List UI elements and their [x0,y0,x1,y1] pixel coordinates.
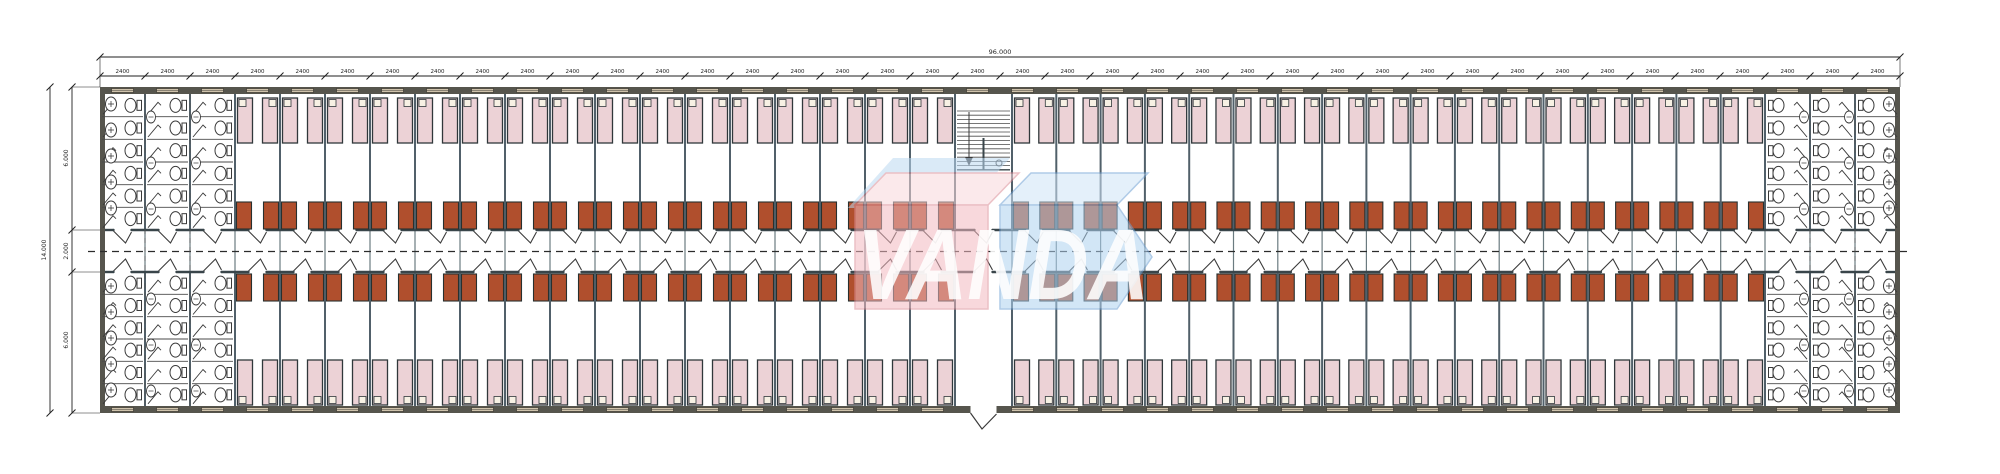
bed-pillow [1400,100,1407,107]
stall-door-leaf [148,370,161,382]
bed-pillow [1665,397,1672,404]
cabinet [1261,202,1276,229]
toilet-tank [137,278,142,288]
bed-pillow [284,397,291,404]
toilet-bowl [170,121,181,135]
bathroom-block [1767,94,1898,406]
stall-door-leaf [193,325,206,337]
toilet-bowl [1773,98,1784,112]
door-leaf [564,259,582,271]
bed-pillow [674,397,681,404]
stall-door-leaf [1839,325,1852,337]
door-leaf [204,259,222,271]
stall-door-leaf [1794,325,1807,337]
door-leaf [1557,259,1575,271]
toilet-tank [1859,323,1864,333]
bed-pillow [449,397,456,404]
bed-pillow [1193,397,1200,404]
toilet-bowl [1863,388,1874,402]
cabinet [372,202,387,229]
door-leaf [1869,231,1887,243]
toilet-bowl [170,212,181,226]
bed-pillow [899,100,906,107]
bed-pillow [944,397,951,404]
cabinet [1235,202,1250,229]
toilet-tank [1769,390,1774,400]
bed-pillow [1355,100,1362,107]
toilet-tank [182,301,187,311]
stall-door-leaf [148,216,161,228]
cabinet [489,274,504,301]
bed-pillow [719,397,726,404]
bed-pillow [314,397,321,404]
door-leaf [1824,231,1842,243]
module-dimension-label: 2400 [791,69,805,75]
bed-pillow [1533,397,1540,404]
bed-pillow [1577,397,1584,404]
door-jamb [157,271,159,273]
bed-pillow [1488,397,1495,404]
bed-pillow [554,397,561,404]
cabinet [822,202,837,229]
cabinet [1324,202,1339,229]
door-jamb [1511,271,1513,273]
toilet-bowl [1863,144,1874,158]
toilet-bowl [1773,388,1784,402]
cabinet [327,202,342,229]
toilet-bowl [215,144,226,158]
module-dimension-label: 2400 [1331,69,1345,75]
bed-pillow [779,100,786,107]
toilet-tank [1859,214,1864,224]
entrance-door-leaf [971,413,997,429]
cabinet [399,274,414,301]
bed-pillow [1134,100,1141,107]
module-dimension-label: 2400 [1691,69,1705,75]
door-jamb [1201,271,1203,273]
bed-pillow [1222,397,1229,404]
door-leaf [294,231,312,243]
toilet-tank [1814,390,1819,400]
stall-door-leaf [1839,280,1852,292]
cabinet [417,202,432,229]
cabinet [1527,274,1542,301]
cabinet [282,274,297,301]
cabinet [1722,202,1737,229]
module-dimension-label: 2400 [161,69,175,75]
stall-door-leaf [193,216,206,228]
toilet-tank [1769,123,1774,133]
bed-pillow [854,397,861,404]
bed-pillow [329,397,336,404]
bed-pillow [764,397,771,404]
bed-pillow [1621,100,1628,107]
cabinet [552,274,567,301]
toilet-tank [182,278,187,288]
door-leaf [519,231,537,243]
cabinet [534,202,549,229]
cabinet [1634,274,1649,301]
cabinet [417,274,432,301]
bed-pillow [1222,100,1229,107]
toilet-bowl [125,189,136,203]
cabinet [1412,202,1427,229]
toilet-tank [137,214,142,224]
height-segment-label: 6.000 [63,331,70,348]
bed-pillow [1592,100,1599,107]
toilet-tank [1814,301,1819,311]
cabinet [1483,202,1498,229]
toilet-tank [182,368,187,378]
toilet-bowl [215,212,226,226]
bed-pillow [464,397,471,404]
toilet-bowl [215,388,226,402]
toilet-bowl [1773,276,1784,290]
toilet-bowl [1818,366,1829,380]
cabinet [1173,274,1188,301]
door-jamb [382,271,384,273]
bed-pillow [1105,100,1112,107]
door-jamb [1467,271,1469,273]
bed-pillow [1621,397,1628,404]
cabinet [1438,202,1453,229]
toilet-bowl [215,189,226,203]
module-dimension-label: 2400 [1376,69,1390,75]
toilet-bowl [1773,299,1784,313]
module-dimension-label: 2400 [476,69,490,75]
bed-pillow [584,397,591,404]
door-leaf [1380,231,1398,243]
bed-pillow [284,100,291,107]
bed-pillow [914,397,921,404]
cabinet [804,202,819,229]
bed-pillow [869,100,876,107]
toilet-bowl [1773,366,1784,380]
bed-pillow [1459,100,1466,107]
module-dimension-label: 2400 [1781,69,1795,75]
module-dimension-label: 2400 [1826,69,1840,75]
door-leaf [1645,259,1663,271]
door-leaf [1247,259,1265,271]
toilet-bowl [215,299,226,313]
toilet-tank [1814,100,1819,110]
door-jamb [472,271,474,273]
bed-pillow [1680,100,1687,107]
toilet-tank [137,100,142,110]
cabinet [237,202,252,229]
height-segment-label: 6.000 [63,149,70,166]
door-jamb [202,229,204,231]
cabinet [687,274,702,301]
bed-pillow [269,100,276,107]
module-dimension-label: 2400 [206,69,220,75]
door-leaf [429,231,447,243]
module-dimension-label: 2400 [431,69,445,75]
toilet-tank [1769,191,1774,201]
door-jamb [697,271,699,273]
toilet-tank [227,301,232,311]
toilet-bowl [170,299,181,313]
toilet-bowl [125,366,136,380]
toilet-tank [1769,168,1774,178]
cabinet [1634,202,1649,229]
bed-pillow [1444,100,1451,107]
toilet-tank [1859,191,1864,201]
toilet-bowl [1818,166,1829,180]
door-leaf [1690,231,1708,243]
bed-pillow [1548,100,1555,107]
bed-pillow [1459,397,1466,404]
toilet-bowl [1863,98,1874,112]
toilet-bowl [1818,299,1829,313]
bed-pillow [1636,397,1643,404]
toilet-bowl [215,366,226,380]
cabinet [1527,202,1542,229]
cabinet [1571,274,1586,301]
bed-pillow [644,397,651,404]
cabinet [237,274,252,301]
stall-door-leaf [148,325,161,337]
toilet-bowl [1863,189,1874,203]
toilet-tank [1859,100,1864,110]
module-dimension-label: 2400 [1511,69,1525,75]
bed-pillow [1592,397,1599,404]
module-dimension-label: 2400 [296,69,310,75]
door-jamb [1423,271,1425,273]
toilet-bowl [1773,166,1784,180]
bed-pillow [329,100,336,107]
bed-pillow [404,100,411,107]
bed-pillow [1680,397,1687,404]
toilet-tank [182,123,187,133]
bed-pillow [1237,397,1244,404]
toilet-tank [1769,146,1774,156]
toilet-tank [1859,390,1864,400]
module-dimension-label: 2400 [386,69,400,75]
door-jamb [1822,271,1824,273]
toilet-bowl [215,166,226,180]
bed-pillow [809,100,816,107]
toilet-tank [182,323,187,333]
toilet-tank [137,301,142,311]
stall-door-leaf [1839,170,1852,182]
cabinet [579,202,594,229]
stall-door-leaf [1839,370,1852,382]
toilet-bowl [125,388,136,402]
cabinet [1722,274,1737,301]
module-dimension-label: 2400 [1061,69,1075,75]
toilet-bowl [170,189,181,203]
cabinet [444,202,459,229]
cabinet [1589,202,1604,229]
cabinet [354,202,369,229]
toilet-tank [1859,345,1864,355]
entrance-opening [971,406,997,413]
toilet-bowl [1818,144,1829,158]
bed-pillow [1134,397,1141,404]
bed-pillow [419,397,426,404]
door-jamb [202,271,204,273]
cabinet [507,202,522,229]
bed-pillow [1503,100,1510,107]
door-jamb [1688,271,1690,273]
toilet-tank [137,168,142,178]
door-jamb [742,271,744,273]
door-leaf [384,259,402,271]
bed-pillow [1370,100,1377,107]
cabinet [1545,202,1560,229]
toilet-tank [1769,368,1774,378]
door-leaf [159,231,177,243]
bed-pillow [419,100,426,107]
bed-pillow [914,100,921,107]
toilet-bowl [170,276,181,290]
bed-pillow [314,100,321,107]
toilet-tank [182,345,187,355]
module-dimension-label: 2400 [836,69,850,75]
bed-pillow [719,100,726,107]
door-leaf [1424,259,1442,271]
cabinet [1306,202,1321,229]
bed-pillow [1090,100,1097,107]
toilet-tank [137,390,142,400]
cabinet [822,274,837,301]
door-leaf [114,259,132,271]
module-dimension-label: 2400 [1421,69,1435,75]
toilet-bowl [215,276,226,290]
bed-pillow [1370,397,1377,404]
cabinet [1678,202,1693,229]
bed-pillow [1577,100,1584,107]
cabinet [1279,274,1294,301]
toilet-tank [1769,323,1774,333]
cabinet [1483,274,1498,301]
cabinet [1660,202,1675,229]
door-leaf [609,231,627,243]
door-leaf [834,231,852,243]
toilet-tank [1814,345,1819,355]
bed-pillow [899,397,906,404]
watermark-text: VANDA [857,209,1149,321]
toilet-tank [227,123,232,133]
bed-pillow [1267,397,1274,404]
cabinet [1749,274,1764,301]
door-leaf [789,259,807,271]
cabinet [1412,274,1427,301]
door-jamb [652,271,654,273]
bed-pillow [734,397,741,404]
bed-pillow [539,397,546,404]
toilet-tank [227,278,232,288]
bed-pillow [1149,100,1156,107]
toilet-tank [1769,214,1774,224]
cabinet [597,274,612,301]
door-leaf [1734,231,1752,243]
module-dimension-label: 2400 [881,69,895,75]
bed-pillow [1311,397,1318,404]
bed-pillow [1178,100,1185,107]
door-jamb [1644,271,1646,273]
bed-pillow [779,397,786,404]
door-leaf [1158,259,1176,271]
bed-pillow [599,100,606,107]
cabinet [309,202,324,229]
cabinet [444,274,459,301]
stall-door-leaf [148,125,161,137]
door-leaf [1291,231,1309,243]
toilet-tank [227,214,232,224]
stall-door-leaf [1794,280,1807,292]
door-leaf [1512,231,1530,243]
toilet-tank [1769,345,1774,355]
cabinet [282,202,297,229]
cabinet [1235,274,1250,301]
toilet-tank [1769,100,1774,110]
door-leaf [1601,259,1619,271]
bed-pillow [1178,397,1185,404]
bed-pillow [869,397,876,404]
cabinet [552,202,567,229]
stall-door-leaf [1839,216,1852,228]
bed-pillow [1725,100,1732,107]
bed-pillow [1045,397,1052,404]
toilet-tank [182,214,187,224]
cabinet [507,274,522,301]
door-leaf [1601,231,1619,243]
cabinet [327,274,342,301]
cabinet [1368,274,1383,301]
cabinet [1279,202,1294,229]
bed-pillow [1060,100,1067,107]
toilet-tank [1769,278,1774,288]
bed-pillow [1149,397,1156,404]
cabinet [759,202,774,229]
stall-door-leaf [193,170,206,182]
cabinet [1191,202,1206,229]
door-leaf [1380,259,1398,271]
door-leaf [339,231,357,243]
bed-pillow [1090,397,1097,404]
bed-pillow [944,100,951,107]
toilet-tank [1859,168,1864,178]
overall-dimension-label: 96.000 [989,48,1012,56]
cabinet [669,202,684,229]
cabinet [804,274,819,301]
cabinet [1350,202,1365,229]
door-leaf [699,259,717,271]
door-jamb [112,271,114,273]
cabinet [777,202,792,229]
bed-pillow [449,100,456,107]
bed-pillow [374,100,381,107]
door-leaf [1690,259,1708,271]
toilet-bowl [1818,98,1829,112]
bed-pillow [1105,397,1112,404]
cabinet [1173,202,1188,229]
module-dimension-label: 2400 [1871,69,1885,75]
toilet-bowl [215,321,226,335]
module-dimension-label: 2400 [566,69,580,75]
toilet-tank [1814,214,1819,224]
cabinet [1217,274,1232,301]
toilet-bowl [215,98,226,112]
exterior-wall-bottom [100,406,1900,413]
stall-door-leaf [148,280,161,292]
door-leaf [1291,259,1309,271]
toilet-bowl [1773,343,1784,357]
toilet-bowl [1818,343,1829,357]
module-dimension-label: 2400 [1016,69,1030,75]
